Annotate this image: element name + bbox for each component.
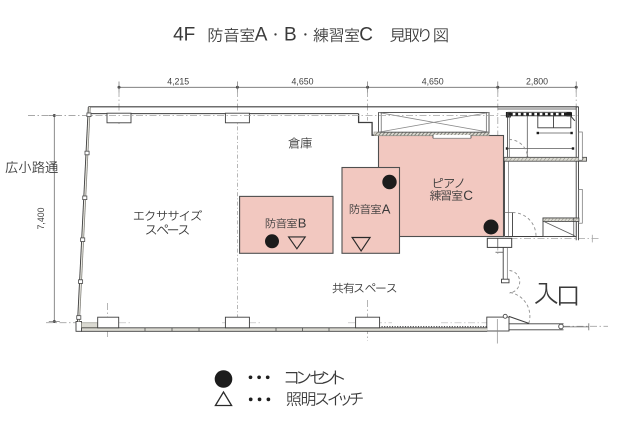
svg-text:A: A bbox=[255, 24, 268, 45]
svg-text:4,650: 4,650 bbox=[422, 76, 444, 86]
svg-text:B: B bbox=[298, 216, 307, 231]
svg-text:4F: 4F bbox=[173, 24, 195, 45]
svg-text:4,215: 4,215 bbox=[167, 76, 189, 86]
svg-text:4,650: 4,650 bbox=[291, 76, 313, 86]
svg-text:C: C bbox=[463, 188, 473, 203]
svg-text:7,400: 7,400 bbox=[36, 207, 46, 229]
svg-text:B: B bbox=[284, 24, 297, 45]
svg-text:2,800: 2,800 bbox=[526, 76, 548, 86]
svg-text:C: C bbox=[359, 24, 373, 45]
svg-text:A: A bbox=[382, 201, 391, 216]
